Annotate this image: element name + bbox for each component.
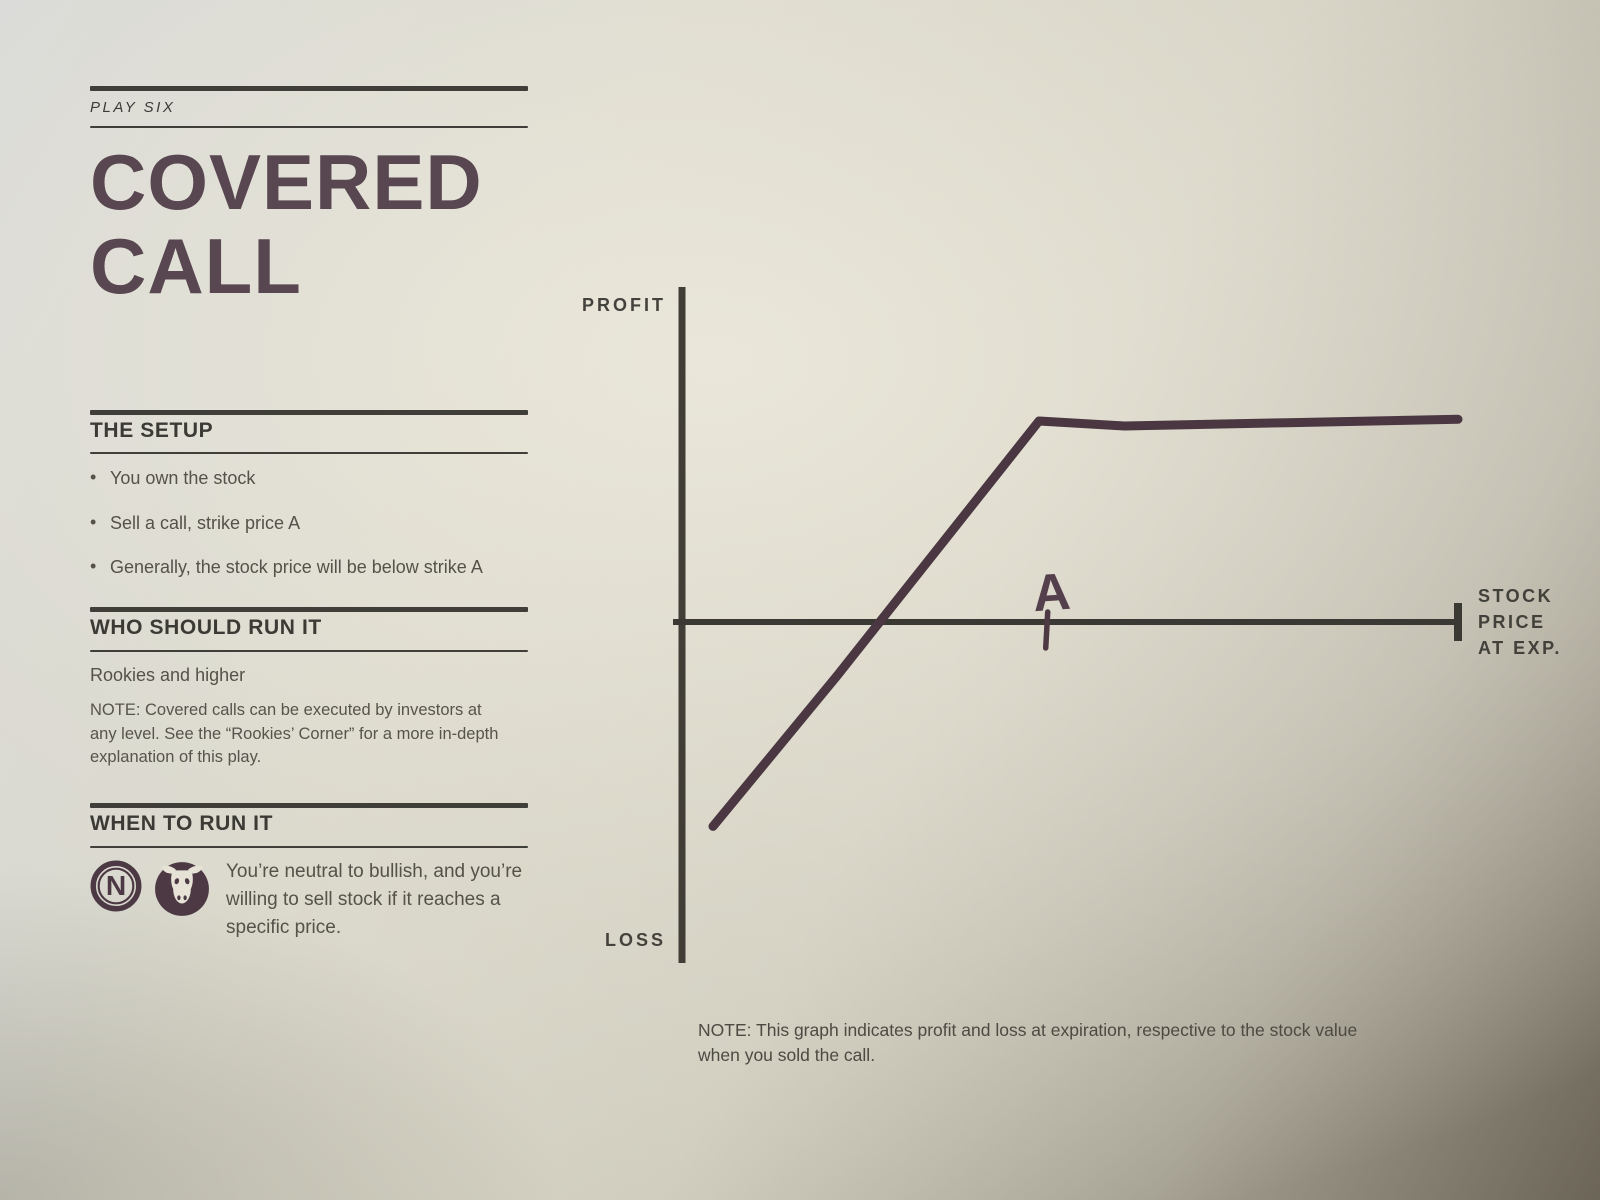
x-axis-label-line1: STOCK — [1478, 586, 1553, 607]
page-title-line1: COVERED — [90, 138, 483, 226]
payoff-chart: A PROFIT LOSS STOCK PRICE AT EXP. NOTE: … — [560, 270, 1600, 1080]
when-text: You’re neutral to bullish, and you’re wi… — [226, 861, 522, 938]
setup-rule-top — [90, 410, 528, 415]
bull-icon — [153, 860, 211, 918]
profit-axis-label: PROFIT — [560, 295, 666, 316]
setup-bullet-list: You own the stock Sell a call, strike pr… — [90, 468, 528, 602]
book-page-photo: { "page": { "kicker": "PLAY SIX", "title… — [0, 0, 1600, 1200]
strike-label: A — [1031, 563, 1073, 623]
who-rule-bottom — [90, 650, 528, 652]
when-body: N You’re neutral to bullish, and you’re … — [90, 858, 528, 942]
page-title: COVEREDCALL — [90, 140, 528, 308]
when-rule-bottom — [90, 846, 528, 848]
x-axis-label-line3: AT EXP. — [1478, 638, 1562, 659]
kicker-rule-bottom — [90, 126, 528, 128]
sentiment-icons: N — [90, 860, 216, 922]
setup-rule-bottom — [90, 452, 528, 454]
neutral-icon-letter: N — [106, 870, 126, 901]
when-heading: WHEN TO RUN IT — [90, 812, 528, 836]
when-rule-top — [90, 803, 528, 808]
setup-bullet: You own the stock — [90, 468, 528, 490]
page-title-line2: CALL — [90, 222, 302, 310]
who-heading: WHO SHOULD RUN IT — [90, 616, 528, 640]
setup-bullet: Sell a call, strike price A — [90, 513, 528, 535]
payoff-chart-canvas: A — [560, 270, 1600, 1080]
who-rule-top — [90, 607, 528, 612]
x-axis-label-line2: PRICE — [1478, 612, 1546, 633]
who-note-text: NOTE: Covered calls can be executed by i… — [90, 699, 500, 770]
setup-bullet: Generally, the stock price will be below… — [90, 557, 528, 579]
chart-note: NOTE: This graph indicates profit and lo… — [698, 1018, 1393, 1068]
setup-heading: THE SETUP — [90, 419, 528, 443]
play-kicker: PLAY SIX — [90, 99, 528, 116]
loss-axis-label: LOSS — [560, 930, 666, 951]
who-level-text: Rookies and higher — [90, 664, 528, 687]
neutral-icon: N — [90, 860, 142, 912]
kicker-rule-top — [90, 86, 528, 91]
